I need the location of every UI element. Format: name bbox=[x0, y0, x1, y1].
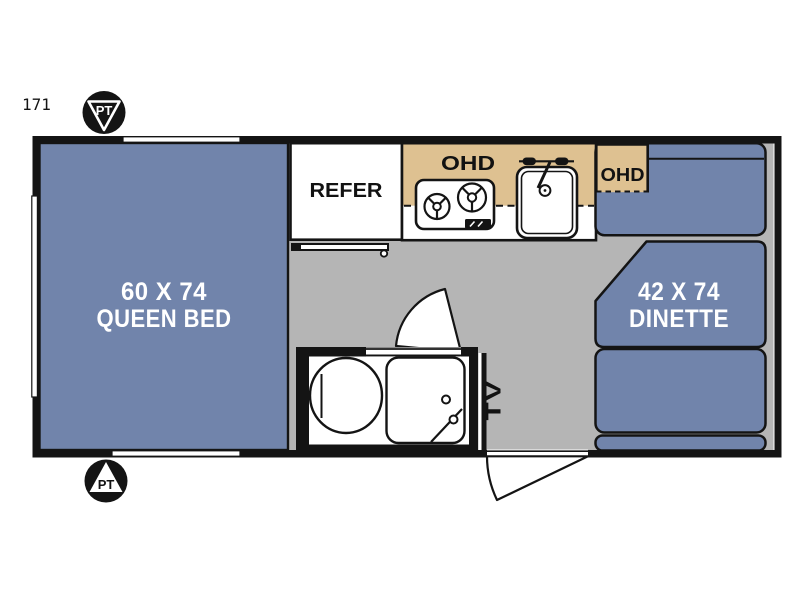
entry-door-swing bbox=[487, 456, 588, 500]
bed-name-label: QUEEN BED bbox=[97, 305, 232, 333]
tv-label: TV bbox=[483, 380, 506, 421]
refrigerator: REFER bbox=[291, 143, 403, 257]
counter-extension-mount bbox=[292, 243, 301, 251]
counter-extension bbox=[292, 244, 388, 250]
window-top bbox=[123, 137, 240, 142]
toilet bbox=[310, 358, 382, 433]
window-left bbox=[32, 196, 38, 397]
bed-size-label: 60 X 74 bbox=[121, 278, 207, 306]
dinette-backrest-bottom bbox=[596, 436, 766, 451]
kitchen-overhead-label: OHD bbox=[441, 153, 495, 175]
sink-basin-outer bbox=[517, 167, 577, 238]
pass-through-marker-top: PT bbox=[83, 91, 126, 134]
window-bottom bbox=[112, 451, 240, 456]
model-number: 171 bbox=[22, 95, 51, 114]
tv-wall-gap bbox=[479, 353, 482, 450]
bathroom: TV bbox=[296, 347, 506, 457]
dinette-bench-bottom bbox=[596, 349, 766, 433]
pass-through-marker-bottom: PT bbox=[85, 460, 128, 503]
counter-support-knob bbox=[381, 250, 387, 256]
dinette-overhead: OHD bbox=[596, 143, 649, 192]
stove-cooktop bbox=[416, 180, 494, 229]
dinette-size-label: 42 X 74 bbox=[638, 278, 720, 306]
dinette-overhead-label: OHD bbox=[601, 165, 645, 185]
pt-bottom-label: PT bbox=[98, 477, 115, 492]
kitchen-sink bbox=[517, 158, 577, 239]
stove-vent bbox=[465, 219, 491, 229]
queen-bed: 60 X 74 QUEEN BED bbox=[40, 143, 289, 450]
pt-top-label: PT bbox=[96, 103, 113, 118]
entry-door bbox=[487, 450, 588, 501]
refrigerator-label: REFER bbox=[310, 180, 384, 202]
faucet-handle-left bbox=[523, 158, 537, 166]
shower bbox=[387, 358, 465, 444]
sink-drain-dot bbox=[544, 189, 547, 192]
faucet-handle-right bbox=[555, 158, 569, 166]
dinette-name-label: DINETTE bbox=[629, 305, 729, 333]
wall-right bbox=[775, 136, 782, 458]
floorplan-canvas: 60 X 74 QUEEN BED REFER OHD bbox=[0, 0, 800, 600]
